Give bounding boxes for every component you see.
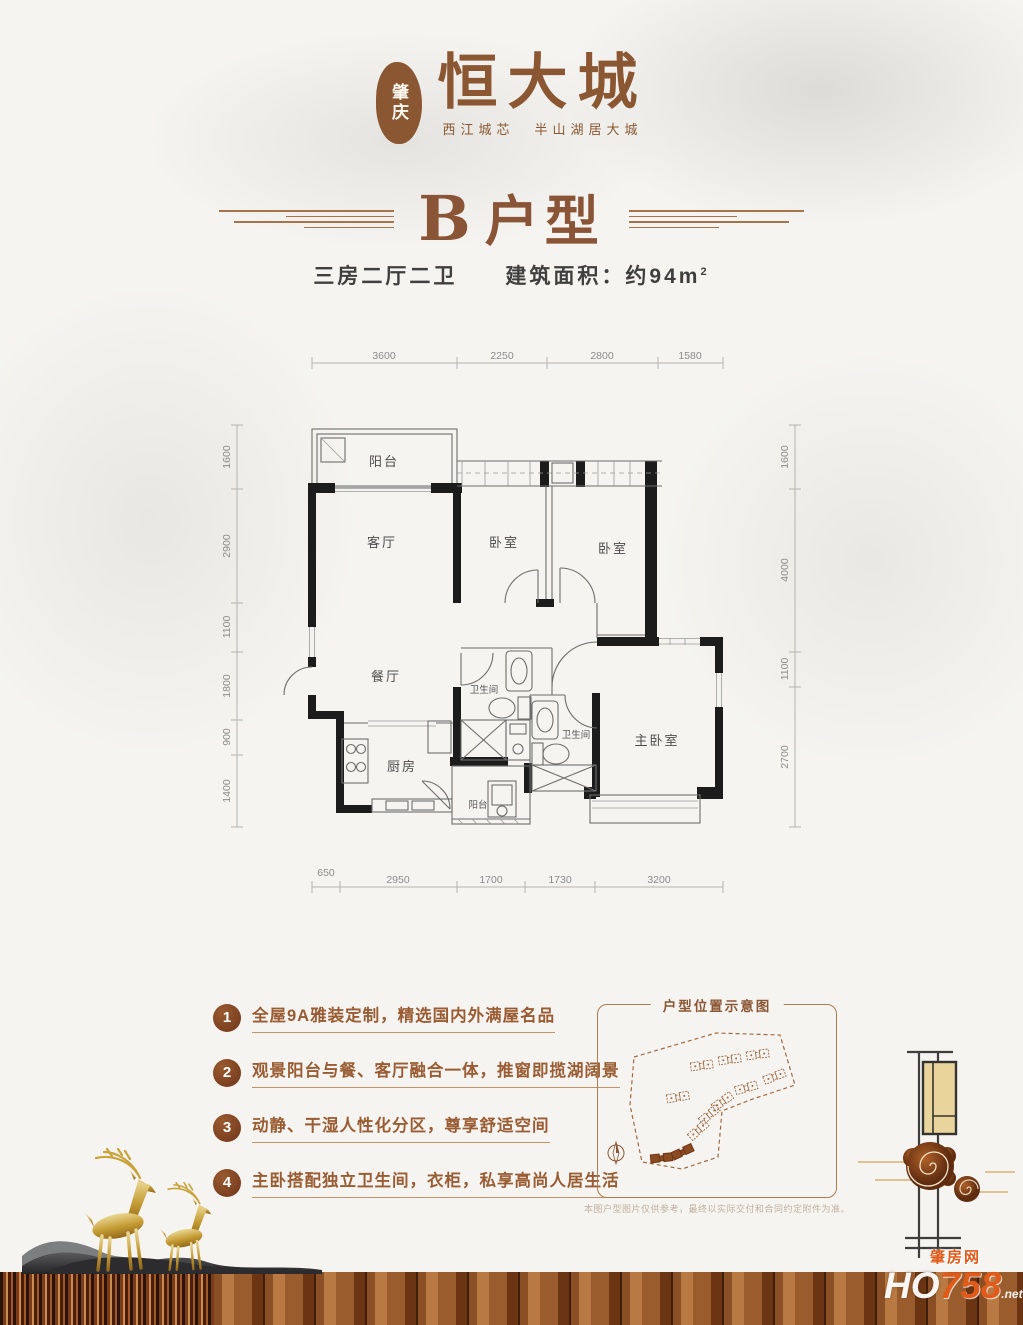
map-disclaimer: 本图户型图片仅供参考，最终以实际交付和合同约定附件为准。: [584, 1202, 850, 1215]
unit-word: 户型: [485, 194, 605, 248]
building-footprints: [666, 1049, 786, 1141]
dim-bottom-3: 1700: [479, 874, 503, 886]
dim-bottom-2: 2950: [386, 874, 410, 886]
brand-logo: 肇庆 恒大城 西江城芯 半山湖居大城: [0, 52, 1023, 144]
dim-top-1: 3600: [372, 350, 396, 362]
feature-number-badge: 1: [213, 1004, 241, 1032]
deer-small: [160, 1183, 211, 1270]
room-label-bedroom1: 卧室: [489, 535, 519, 550]
dim-left-4: 1800: [221, 674, 233, 698]
wood-stripes: [0, 1272, 214, 1325]
dim-left-2: 2900: [221, 534, 233, 558]
page-title: B 户型: [418, 188, 604, 250]
location-map-box: 户型位置示意图: [597, 1004, 837, 1198]
room-label-living: 客厅: [367, 535, 397, 550]
room-label-dining: 餐厅: [371, 669, 401, 684]
wood-plank-strip: [0, 1272, 1023, 1325]
location-map-title: 户型位置示意图: [651, 995, 784, 1015]
feature-text: 全屋9A雅装定制，精选国内外满屋名品: [252, 1002, 555, 1033]
room-label-balcony-bottom: 阳台: [468, 799, 487, 811]
feature-number-badge: 3: [213, 1114, 241, 1142]
dim-right-1: 1600: [779, 445, 791, 469]
unit-title-row: B 户型: [0, 188, 1023, 250]
unit-spec: 三房二厅二卫: [313, 260, 457, 290]
compass-icon: [608, 1142, 624, 1164]
dim-bottom-1: 650: [317, 867, 335, 879]
brand-tagline: 西江城芯 半山湖居大城: [442, 119, 642, 138]
floor-plan: 3600 2250 2800 1580 1600 2900 1100 1800 …: [200, 335, 820, 910]
dim-top-2: 2250: [490, 350, 514, 362]
dim-left-3: 1100: [221, 616, 233, 639]
dim-left-1: 1600: [221, 445, 233, 469]
room-label-bath1: 卫生间: [470, 684, 499, 696]
balcony-bottom-outline: [452, 766, 530, 824]
feature-item: 1 全屋9A雅装定制，精选国内外满屋名品: [213, 1002, 620, 1033]
feature-text: 动静、干湿人性化分区，尊享舒适空间: [252, 1112, 550, 1143]
dim-bottom-5: 3200: [647, 874, 671, 886]
feature-text: 观景阳台与餐、客厅融合一体，推窗即揽湖阔景: [252, 1057, 620, 1088]
unit-subtitle: 三房二厅二卫 建筑面积：约94m2: [0, 260, 1023, 290]
dim-top-4: 1580: [678, 350, 702, 362]
dim-top-3: 2800: [590, 350, 614, 362]
title-deco-lines-left: [219, 210, 394, 228]
room-label-kitchen: 厨房: [387, 759, 417, 774]
room-label-balcony-top: 阳台: [369, 454, 399, 469]
highlighted-building: [650, 1144, 694, 1163]
dim-right-4: 2700: [779, 745, 791, 769]
bronze-cloud-motif: [903, 1142, 980, 1202]
tagline-right: 半山湖居大城: [535, 119, 643, 138]
watermark-en: HO758.net: [884, 1267, 1020, 1304]
brand-name: 恒大城: [438, 52, 648, 115]
site-boundary: [630, 1033, 795, 1169]
feature-number-badge: 2: [213, 1059, 241, 1087]
watermark-cn: 肇房网: [930, 1250, 1020, 1265]
room-label-bedroom2: 卧室: [598, 541, 628, 556]
city-seal-badge: 肇庆: [376, 62, 422, 144]
master-bay-window: [590, 795, 700, 823]
golden-deer-ornament: [22, 1148, 322, 1274]
room-label-master: 主卧室: [634, 733, 679, 748]
lantern-panel: [923, 1062, 956, 1134]
site-watermark: 肇房网 HO758.net: [884, 1250, 1020, 1304]
dim-right-2: 4000: [779, 558, 791, 582]
location-map-diagram: [598, 1005, 833, 1194]
feature-item: 3 动静、干湿人性化分区，尊享舒适空间: [213, 1112, 620, 1143]
room-label-bath2: 卫生间: [562, 729, 591, 741]
unit-letter: B: [418, 188, 470, 250]
dim-left-6: 1400: [221, 779, 233, 803]
partition-and-window-lines: [310, 461, 722, 765]
dim-right-3: 1100: [779, 658, 791, 681]
dim-bottom-4: 1730: [548, 874, 572, 886]
lattice-lantern-decor: [853, 1038, 1023, 1266]
unit-area: 建筑面积：约94m2: [505, 260, 709, 290]
title-deco-lines-right: [629, 210, 804, 228]
feature-item: 2 观景阳台与餐、客厅融合一体，推窗即揽湖阔景: [213, 1057, 620, 1088]
tagline-left: 西江城芯: [442, 119, 514, 138]
dim-left-5: 900: [221, 728, 233, 746]
